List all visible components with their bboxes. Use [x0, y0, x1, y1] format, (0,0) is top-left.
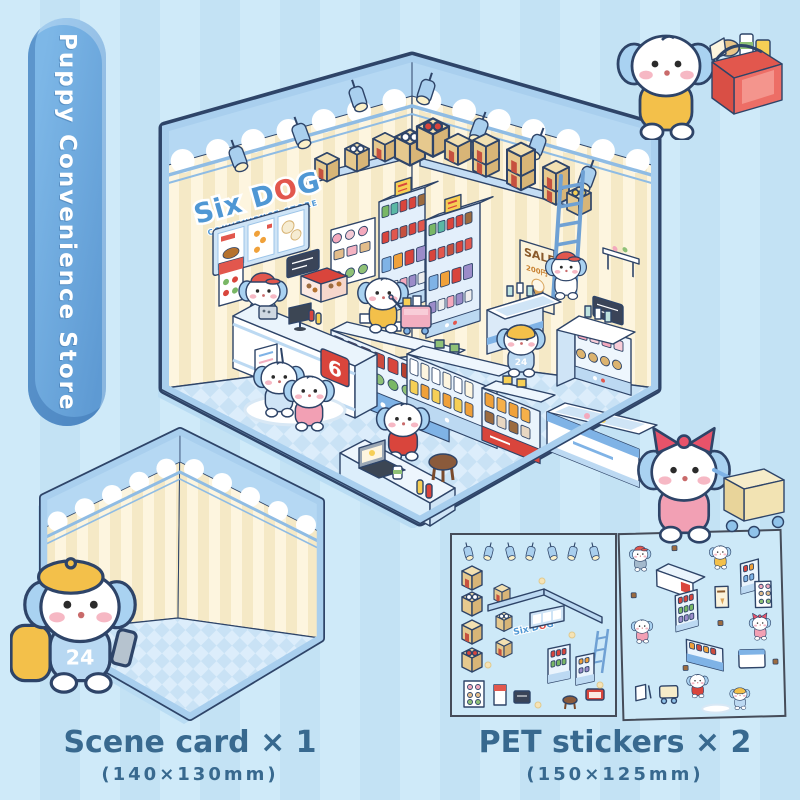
mini-cooler-2: [576, 653, 594, 685]
cardboard-box: [462, 592, 482, 616]
mini-bakery-shelf: [464, 681, 484, 707]
cash-register: [259, 306, 277, 319]
cardboard-box: [345, 143, 369, 172]
sticker-sheet-1: Six DOG: [450, 533, 617, 717]
mini-bakery-rack: [755, 581, 772, 607]
shopping-basket: [710, 34, 782, 114]
title-banner-text: Puppy Convenience Store: [54, 33, 80, 412]
scene-card-size: (140×130mm): [40, 764, 340, 785]
paw-flower-icon: [535, 702, 541, 708]
product-page: { "page": { "background": "#c6e3f4", "st…: [0, 0, 800, 800]
mini-blackboard: [514, 691, 530, 703]
puppy-s2b: [709, 545, 731, 569]
scene-card-label: Scene card × 1 (140×130mm): [40, 726, 340, 785]
mini-menu-board: [530, 606, 564, 628]
puppy-s2d: [749, 613, 771, 641]
paw-flower-icon: [597, 682, 603, 688]
stool: [429, 454, 457, 482]
mini-sale-poster: [715, 586, 729, 607]
mini-prop: [631, 593, 636, 598]
cardboard-box: [462, 620, 482, 644]
cardboard-box: [462, 648, 482, 672]
mini-prop: [683, 665, 688, 670]
ceiling-light-icon: [546, 542, 558, 561]
paw-flower-icon: [569, 632, 575, 638]
paw-flower-icon: [539, 578, 545, 584]
sticker-sheet-1-art: Six DOG: [452, 535, 615, 715]
pet-stickers-size: (150×125mm): [445, 764, 785, 785]
mini-poster: [494, 685, 506, 705]
cardboard-box: [445, 134, 471, 165]
badge-number: 24: [66, 646, 95, 670]
cardboard-box: [473, 134, 499, 165]
mini-cooler: [548, 644, 570, 683]
cardboard-box: [496, 638, 512, 657]
mini-prop: [773, 659, 778, 664]
mini-hot-case: [586, 689, 604, 700]
sticker-sheet-2: [618, 529, 787, 721]
scene-card-title: Scene card × 1: [40, 726, 340, 760]
mini-cart: [660, 686, 678, 704]
mini-gondola: [686, 639, 723, 670]
cream-shopping-cart: [714, 469, 784, 538]
puppy-girl-cart: [638, 428, 729, 542]
pet-stickers-title: PET stickers × 2: [445, 726, 785, 760]
ceiling-light-icon: [483, 542, 495, 561]
puppy-basket-shopper: [618, 36, 714, 140]
cardboard-box: [507, 143, 535, 177]
pet-stickers-label: PET stickers × 2 (150×125mm): [445, 726, 785, 785]
drink-poster: [219, 257, 243, 306]
counter-cup: [393, 466, 402, 479]
puppy-s2a: [629, 546, 651, 572]
title-banner: Puppy Convenience Store: [28, 18, 106, 426]
mini-prop: [718, 620, 723, 625]
mini-freezer: [739, 649, 765, 668]
ceiling-light-icon: [567, 542, 579, 561]
ceiling-light-icon: [525, 542, 537, 561]
sticker-sheet-2-art: [620, 531, 785, 719]
mini-cooler-a: [675, 590, 698, 632]
mini-floor-mat: [702, 704, 730, 713]
mini-a-frame: [636, 684, 651, 700]
cardboard-box: [462, 566, 482, 590]
paw-flower-icon: [485, 662, 491, 668]
cardboard-box: [373, 133, 397, 162]
puppy-s2f: [730, 687, 751, 709]
badge-number: 24: [515, 358, 528, 368]
puppy-s2c: [631, 620, 653, 644]
mini-stool: [563, 696, 577, 709]
cardboard-box: [496, 612, 512, 631]
ceiling-light-icon: [588, 542, 600, 561]
puppy-with-basket: [608, 4, 800, 140]
girl-puppy-with-cart: [628, 406, 800, 546]
puppy-card-clerk: 24: [11, 559, 137, 692]
mini-prop: [672, 546, 677, 551]
ceiling-light-icon: [504, 542, 516, 561]
clerk-puppy: 24: [10, 535, 150, 710]
ceiling-light-icon: [462, 542, 474, 561]
puppy-s2e: [686, 674, 708, 698]
